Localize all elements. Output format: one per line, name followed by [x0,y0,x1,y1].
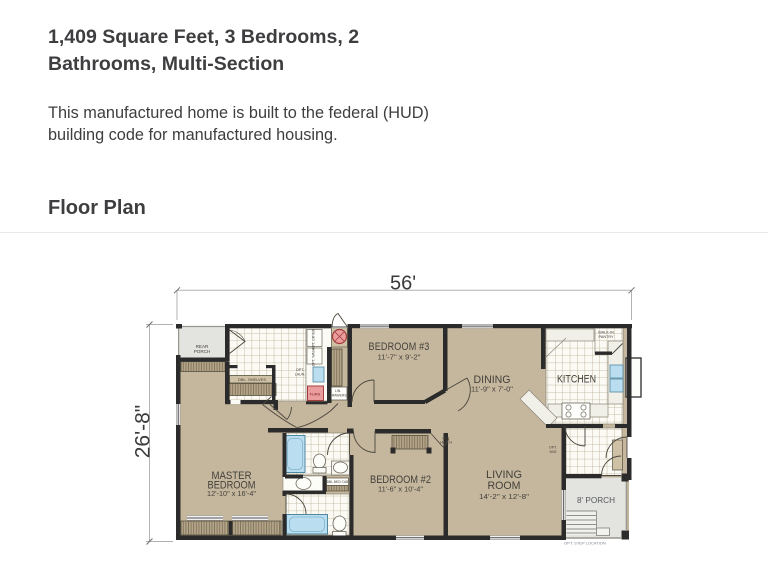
svg-text:W/D: W/D [550,450,557,454]
svg-text:11'-9" x 7'-0": 11'-9" x 7'-0" [471,387,514,394]
svg-text:BEDROOM #3: BEDROOM #3 [369,341,430,353]
svg-text:WALK-IN: WALK-IN [598,331,614,335]
svg-text:DRAWERS: DRAWERS [329,394,347,398]
svg-text:HUTCH: HUTCH [440,441,452,445]
svg-text:PORCH: PORCH [194,349,211,354]
svg-text:ROOM: ROOM [488,480,521,492]
svg-text:LAUN.: LAUN. [295,373,306,377]
svg-text:11'-6" x 10'-4": 11'-6" x 10'-4" [378,487,424,494]
svg-text:OPT.: OPT. [296,368,304,372]
svg-text:8' PORCH: 8' PORCH [577,495,615,505]
svg-text:DINING: DINING [474,374,511,386]
svg-text:FURN.: FURN. [310,393,322,397]
svg-text:DBL. SHELVES: DBL. SHELVES [238,377,266,382]
svg-text:56': 56' [390,273,416,295]
svg-text:OPT. DRYER: OPT. DRYER [312,328,316,349]
svg-text:KITCHEN: KITCHEN [557,374,596,386]
svg-text:11'-7" x 9'-2": 11'-7" x 9'-2" [378,355,422,362]
svg-text:DBL MED CAB: DBL MED CAB [327,480,349,484]
svg-text:LIN.: LIN. [335,389,341,393]
svg-text:BEDROOM: BEDROOM [208,480,256,492]
svg-text:PANTRY: PANTRY [598,335,614,339]
svg-text:BEDROOM #2: BEDROOM #2 [370,474,431,486]
svg-text:OPT.: OPT. [549,446,557,450]
svg-text:OPT. STEP LOCATION: OPT. STEP LOCATION [564,541,606,546]
svg-text:26'-8": 26'-8" [132,405,155,459]
svg-text:OPT. WASH: OPT. WASH [312,347,316,366]
svg-text:12'-10" x 16'-4": 12'-10" x 16'-4" [207,491,257,498]
svg-text:14'-2" x 12'-8": 14'-2" x 12'-8" [479,494,530,501]
